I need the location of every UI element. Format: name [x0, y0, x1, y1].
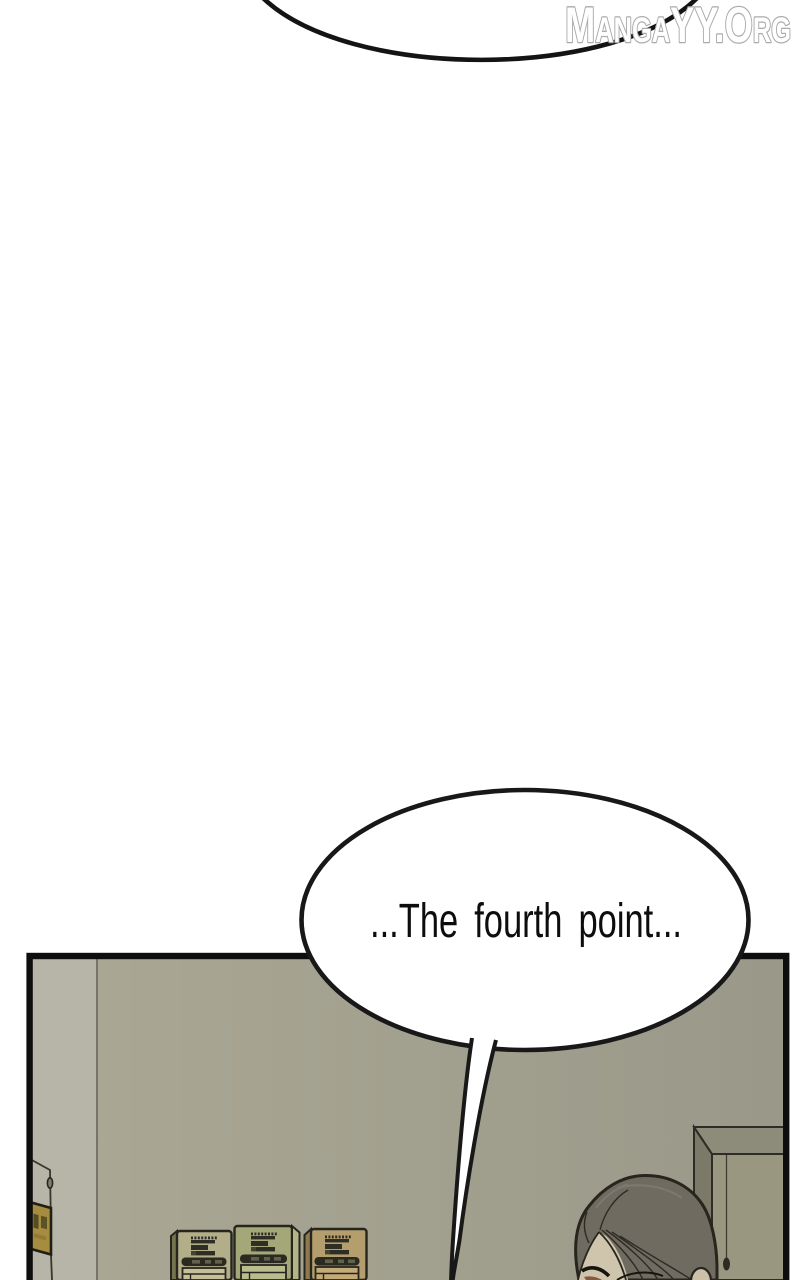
svg-text:...The fourth point...: ...The fourth point... [370, 895, 682, 948]
svg-text:MangaYY.Org: MangaYY.Org [565, 0, 791, 53]
